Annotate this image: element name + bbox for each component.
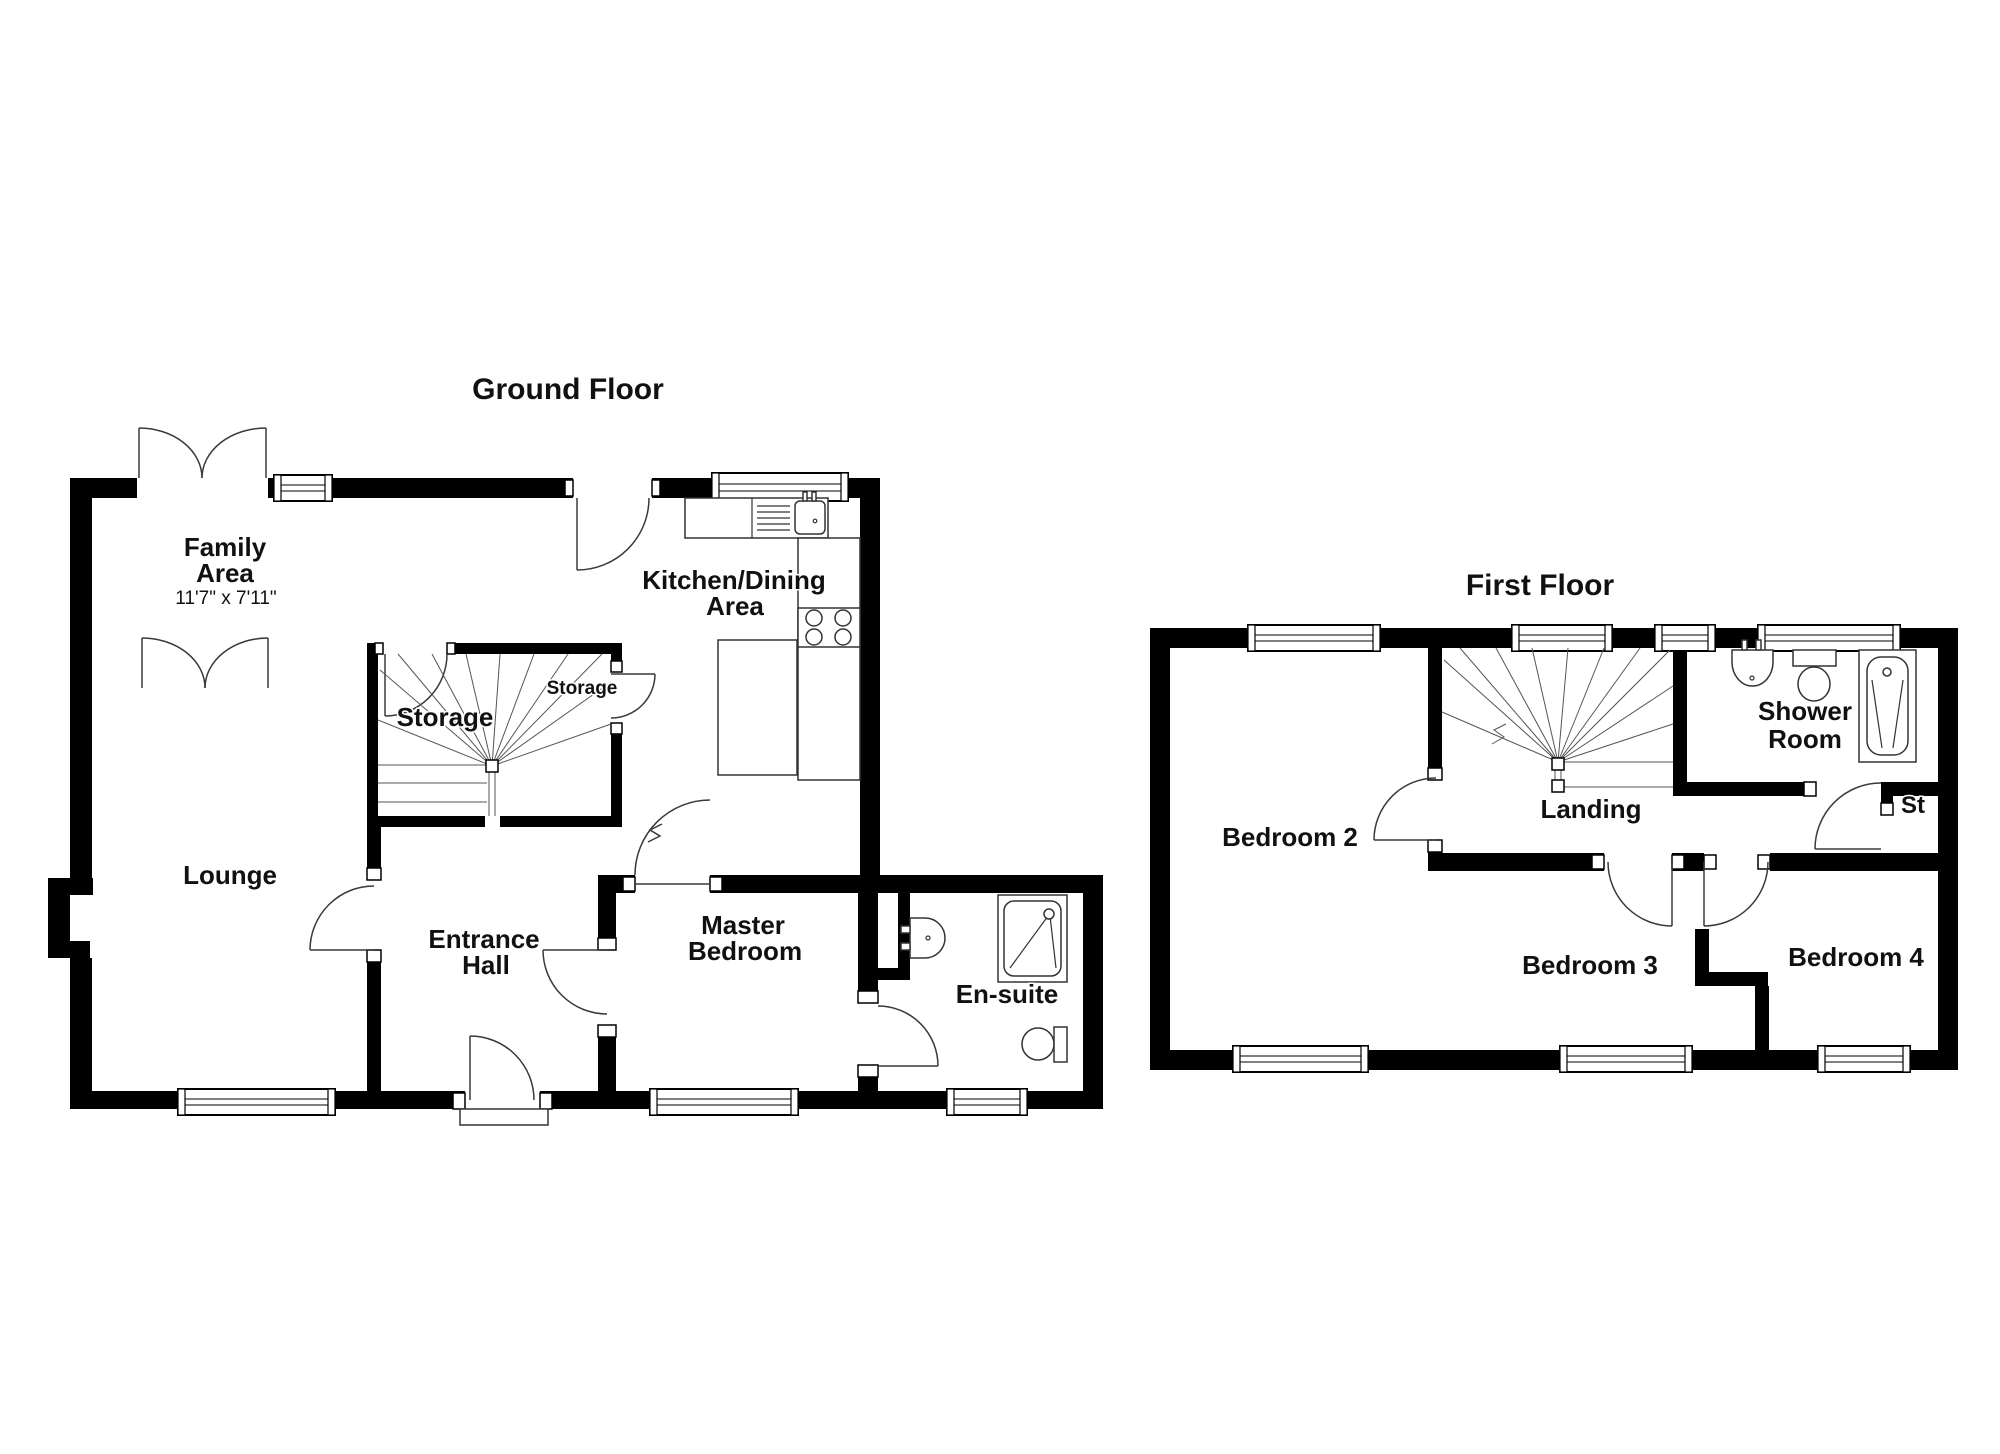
window xyxy=(1512,625,1612,651)
bath-icon xyxy=(1859,650,1916,762)
toilet-icon xyxy=(1793,650,1836,701)
door-arc xyxy=(577,498,649,570)
door-arc xyxy=(878,1006,938,1066)
shower-room-label: Room xyxy=(1768,724,1842,754)
door-arc xyxy=(1374,778,1436,840)
door-arc xyxy=(543,950,607,1014)
door-arc xyxy=(1608,862,1672,926)
window xyxy=(1818,1046,1910,1072)
first-floor: First Floor xyxy=(1150,569,1958,1072)
floorplan-page: Ground Floor xyxy=(0,0,2000,1454)
window xyxy=(1758,625,1900,651)
window xyxy=(1560,1046,1692,1072)
french-doors xyxy=(139,428,266,478)
family-area-label: Area xyxy=(196,558,254,588)
ground-floor: Ground Floor xyxy=(48,373,1103,1125)
window xyxy=(947,1089,1027,1115)
floorplan-canvas: Ground Floor xyxy=(0,0,2000,1454)
ground-floor-title: Ground Floor xyxy=(472,373,664,406)
toilet-icon xyxy=(1022,1027,1067,1062)
french-doors xyxy=(142,638,268,688)
master-bedroom-label: Bedroom xyxy=(688,936,802,966)
window xyxy=(274,475,332,501)
kitchen-dining-label: Area xyxy=(706,591,764,621)
bedroom3-label: Bedroom 3 xyxy=(1522,950,1658,980)
bedroom4-label: Bedroom 4 xyxy=(1788,942,1924,972)
door-arc xyxy=(635,800,710,884)
door-arc xyxy=(1815,783,1881,849)
window xyxy=(178,1089,335,1115)
window xyxy=(1233,1046,1368,1072)
gf-windows xyxy=(178,473,1027,1115)
ff-staircase xyxy=(1442,648,1673,792)
storage-cupboard-label: St xyxy=(1901,792,1925,819)
bedroom2-label: Bedroom 2 xyxy=(1222,822,1358,852)
storage-label: Storage xyxy=(397,702,494,732)
door-arc xyxy=(310,886,374,950)
window xyxy=(1655,625,1715,651)
first-floor-title: First Floor xyxy=(1466,569,1615,602)
cupboard-door xyxy=(611,674,655,718)
family-area-dimensions: 11'7" x 7'11" xyxy=(175,588,276,609)
ff-labels: Bedroom 2 Landing Shower Room St Bedroom… xyxy=(1222,696,1925,980)
window xyxy=(1248,625,1380,651)
shower-room-label: Shower xyxy=(1758,696,1852,726)
hob-icon xyxy=(798,608,860,647)
front-door xyxy=(460,1036,548,1125)
landing-label: Landing xyxy=(1540,794,1641,824)
shower-icon xyxy=(998,895,1067,982)
ensuite-label: En-suite xyxy=(956,979,1059,1009)
door-arc xyxy=(1704,862,1768,926)
entrance-hall-label: Hall xyxy=(462,950,510,980)
window xyxy=(650,1089,798,1115)
window xyxy=(712,473,848,501)
kitchen-table xyxy=(718,640,797,775)
lounge-label: Lounge xyxy=(183,860,277,890)
storage-small-label: Storage xyxy=(547,678,618,699)
